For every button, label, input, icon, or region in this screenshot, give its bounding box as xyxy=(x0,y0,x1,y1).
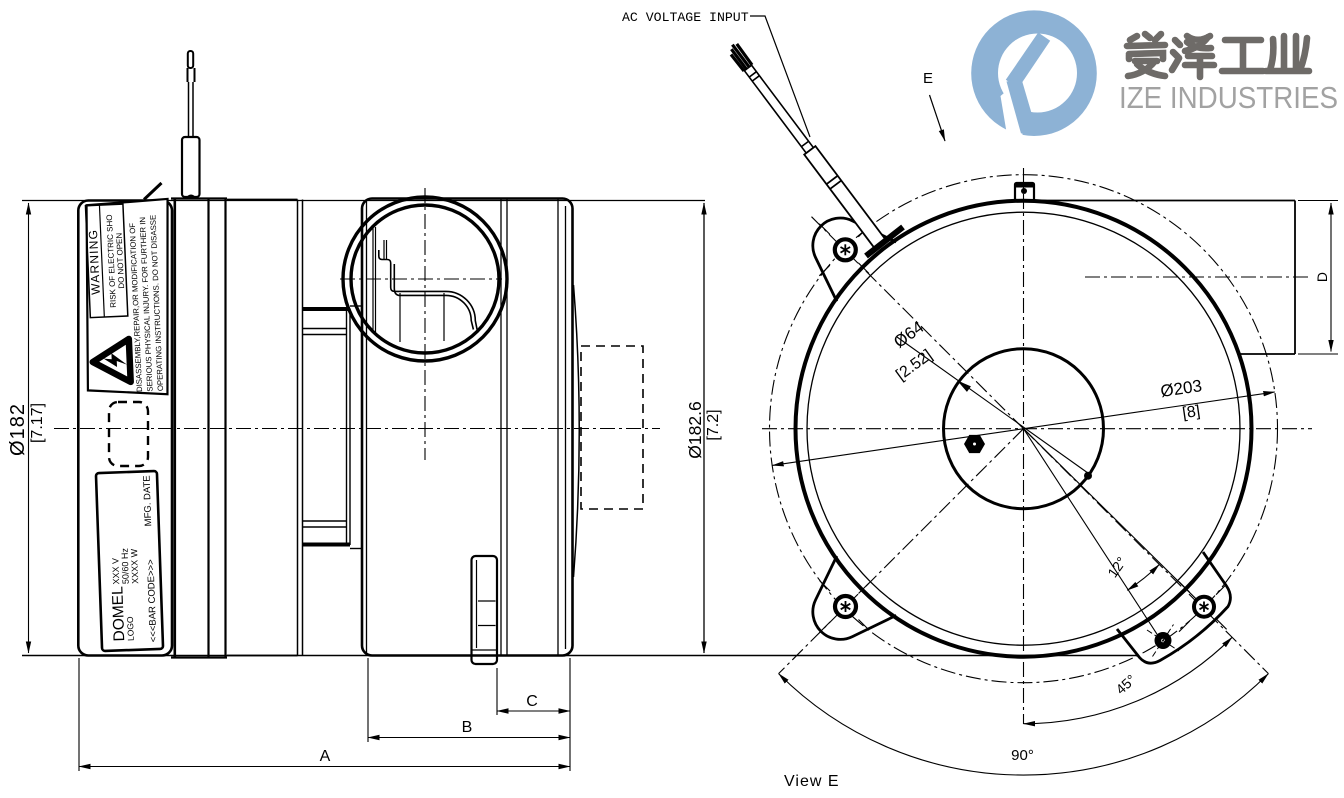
svg-text:D: D xyxy=(1314,272,1330,282)
svg-text:[7.2]: [7.2] xyxy=(705,409,722,440)
svg-text:Ø182.6: Ø182.6 xyxy=(685,401,705,458)
svg-text:IZE INDUSTRIES: IZE INDUSTRIES xyxy=(1119,80,1338,115)
svg-text:AC VOLTAGE INPUT: AC VOLTAGE INPUT xyxy=(622,10,749,25)
svg-text:[7.17]: [7.17] xyxy=(29,403,46,443)
svg-text:[8]: [8] xyxy=(1181,403,1201,422)
svg-text:LOGO: LOGO xyxy=(125,616,136,641)
svg-text:View E: View E xyxy=(784,773,840,790)
svg-text:E: E xyxy=(923,70,933,87)
svg-text:WARNING: WARNING xyxy=(86,229,103,296)
svg-text:MFG. DATE: MFG. DATE xyxy=(142,475,155,526)
svg-text:C: C xyxy=(526,693,538,710)
svg-text:A: A xyxy=(320,748,331,765)
svg-text:B: B xyxy=(462,719,473,736)
svg-text:90°: 90° xyxy=(1011,747,1034,764)
svg-text:Ø182: Ø182 xyxy=(7,403,29,456)
svg-text:XXXX W: XXXX W xyxy=(129,548,140,584)
